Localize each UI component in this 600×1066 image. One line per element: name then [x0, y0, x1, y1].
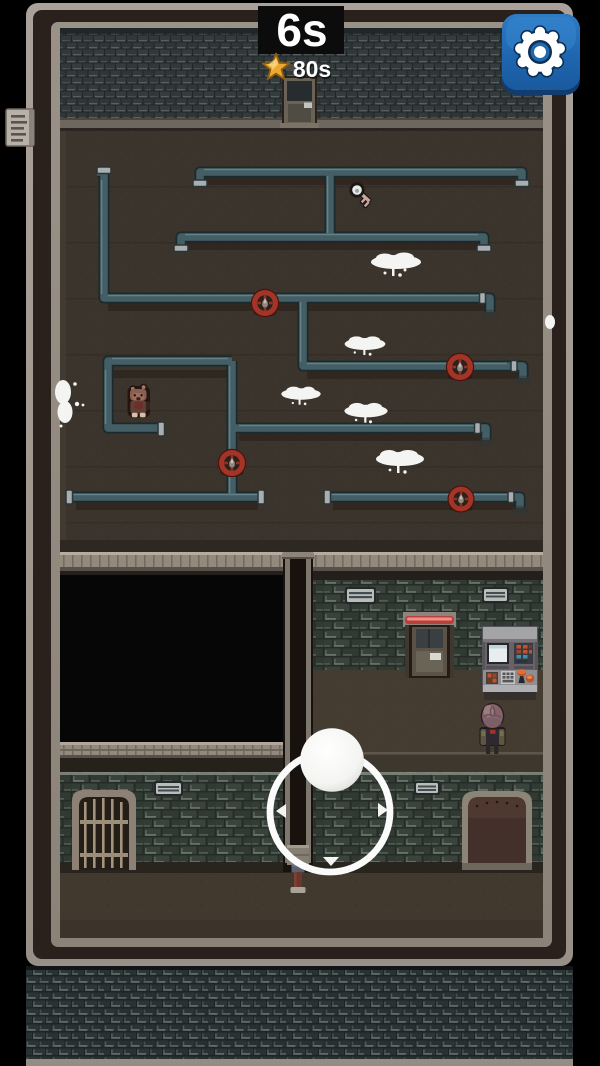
- svg-text:6s: 6s: [276, 4, 327, 56]
- svg-text:80s: 80s: [293, 56, 331, 82]
